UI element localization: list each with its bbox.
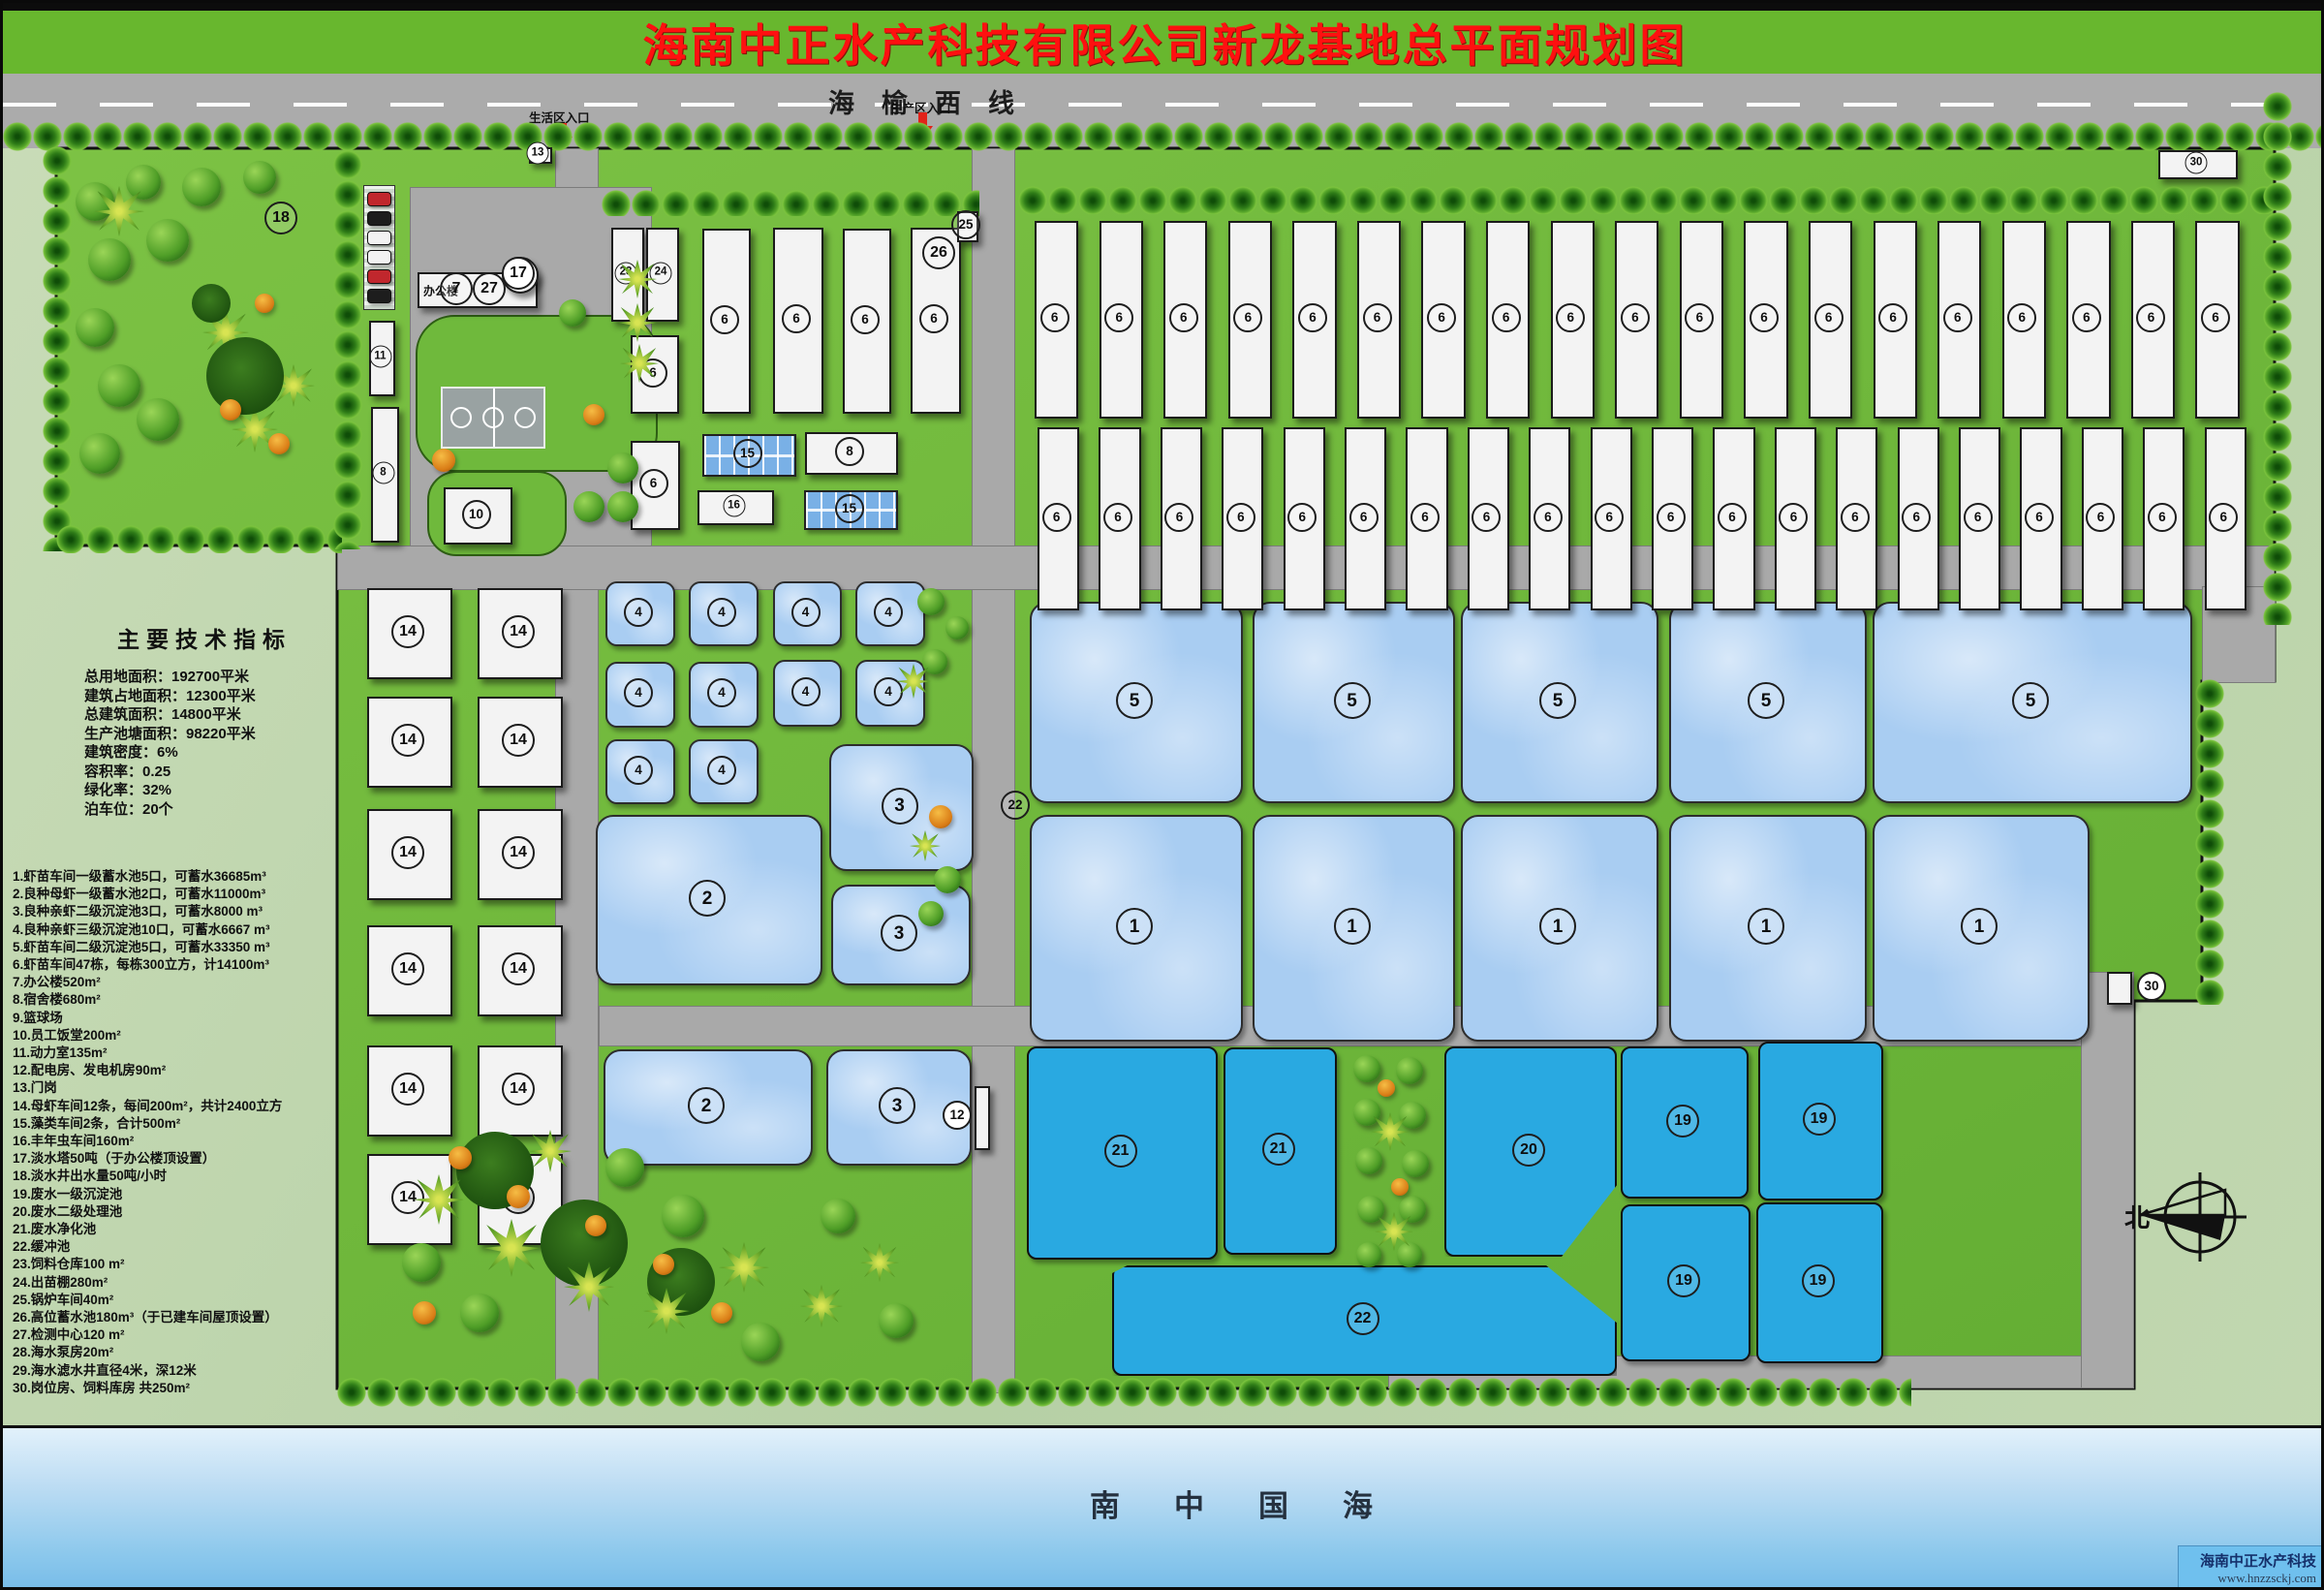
tree-row	[42, 146, 78, 551]
autumn-tree-icon	[449, 1146, 472, 1169]
marker-6: 6	[1814, 303, 1844, 332]
parked-car-icon	[367, 250, 391, 265]
indicators-title: 主要技术指标	[117, 621, 292, 654]
legend-item: 2.良种母虾一级蓄水池2口，可蓄水11000m³	[13, 886, 282, 903]
indicator-line: 总用地面积：192700平米	[84, 668, 256, 687]
legend-item: 20.废水二级处理池	[13, 1203, 282, 1221]
basketball-court	[441, 387, 545, 449]
autumn-tree-icon	[929, 805, 952, 828]
marker-6: 6	[782, 304, 811, 333]
marker-18: 18	[264, 202, 297, 234]
marker-30: 30	[2137, 972, 2166, 1001]
marker-14: 14	[502, 615, 535, 648]
company-logo: 海南中正水产科技 www.hnzzsckj.com	[2178, 1545, 2323, 1590]
marker-6: 6	[1621, 303, 1650, 332]
marker-2: 2	[689, 880, 726, 917]
tree-icon	[607, 452, 638, 483]
marker-6: 6	[919, 304, 948, 333]
tree-icon	[243, 161, 276, 194]
tree-row	[332, 150, 363, 549]
marker-8: 8	[372, 462, 394, 484]
autumn-tree-icon	[711, 1302, 732, 1324]
tree-icon	[1402, 1150, 1429, 1177]
indicator-line: 建筑占地面积：12300平米	[84, 687, 256, 706]
marker-6: 6	[1943, 303, 1972, 332]
tree-row	[2194, 679, 2227, 1005]
marker-16: 16	[723, 495, 745, 517]
legend-item: 25.锅炉车间40m²	[13, 1292, 282, 1309]
court-left-circle	[450, 407, 472, 428]
marker-6: 6	[1298, 303, 1327, 332]
legend-item: 6.虾苗车间47栋，每栋300立方，计14100m³	[13, 956, 282, 974]
marker-15: 15	[835, 494, 864, 523]
marker-14: 14	[502, 724, 535, 757]
palm-tree-icon	[719, 1242, 769, 1293]
marker-4: 4	[707, 598, 736, 627]
marker-22: 22	[1001, 791, 1030, 820]
map-layer: 4444444444233235555511111212120191919192…	[3, 3, 2324, 1590]
marker-5: 5	[2012, 682, 2049, 719]
marker-6: 6	[851, 305, 880, 334]
marker-6: 6	[1595, 503, 1624, 532]
tree-row	[2262, 92, 2303, 625]
legend-item: 26.高位蓄水池180m³（于已建车间屋顶设置）	[13, 1309, 282, 1326]
indicators-list: 总用地面积：192700平米建筑占地面积：12300平米总建筑面积：14800平…	[84, 668, 256, 819]
tree-icon	[662, 1195, 704, 1237]
tree-icon	[607, 491, 638, 522]
tree-cluster-icon	[192, 284, 231, 323]
autumn-tree-icon	[585, 1215, 606, 1236]
legend-item: 17.淡水塔50吨（于办公楼顶设置）	[13, 1150, 282, 1168]
tree-icon	[146, 219, 189, 262]
legend-item: 15.藻类车间2条，合计500m²	[13, 1115, 282, 1133]
tree-icon	[79, 433, 120, 474]
marker-6: 6	[2148, 503, 2177, 532]
tree-icon	[1355, 1147, 1382, 1174]
indicator-line: 建筑密度：6%	[84, 743, 256, 763]
marker-14: 14	[391, 1073, 424, 1106]
marker-6: 6	[2086, 503, 2115, 532]
tree-row	[602, 189, 979, 216]
marker-4: 4	[624, 756, 653, 785]
indicator-line: 总建筑面积：14800平米	[84, 705, 256, 725]
tree-icon	[182, 168, 221, 206]
tree-icon	[1356, 1242, 1381, 1267]
marker-6: 6	[2072, 303, 2101, 332]
marker-14: 14	[502, 836, 535, 869]
legend-item: 22.缓冲池	[13, 1238, 282, 1256]
marker-19: 19	[1666, 1105, 1699, 1138]
legend-item: 16.丰年虫车间160m²	[13, 1133, 282, 1150]
marker-4: 4	[707, 756, 736, 785]
marker-4: 4	[791, 677, 821, 706]
tree-icon	[821, 1199, 855, 1233]
parked-car-icon	[367, 269, 391, 284]
tree-row	[56, 524, 342, 553]
indicator-line: 泊车位：20个	[84, 800, 256, 820]
tree-cluster-icon	[541, 1200, 628, 1287]
marker-5: 5	[1748, 682, 1784, 719]
tree-icon	[460, 1294, 499, 1332]
legend-item: 10.员工饭堂200m²	[13, 1027, 282, 1044]
tree-icon	[934, 866, 961, 893]
marker-27: 27	[473, 272, 506, 305]
marker-3: 3	[882, 788, 918, 825]
marker-19: 19	[1667, 1264, 1700, 1297]
marker-13: 13	[527, 142, 549, 165]
tree-cluster-icon	[206, 337, 284, 415]
marker-3: 3	[879, 1087, 915, 1124]
legend-item: 14.母虾车间12条，每间200m²，共计2400立方	[13, 1098, 282, 1115]
court-right-circle	[514, 407, 536, 428]
palm-tree-icon	[800, 1285, 843, 1327]
marker-6: 6	[1841, 503, 1870, 532]
marker-19: 19	[1803, 1103, 1836, 1136]
tree-icon	[1399, 1196, 1426, 1223]
marker-6: 6	[1169, 303, 1198, 332]
legend-item: 24.出苗棚280m²	[13, 1274, 282, 1292]
legend-item: 8.宿舍楼680m²	[13, 991, 282, 1009]
marker-6: 6	[1040, 303, 1069, 332]
tree-icon	[917, 588, 945, 615]
legend-item: 21.废水净化池	[13, 1221, 282, 1238]
marker-5: 5	[1539, 682, 1576, 719]
marker-12: 12	[943, 1101, 972, 1130]
marker-7: 7	[440, 272, 473, 305]
marker-1: 1	[1961, 908, 1998, 945]
marker-6: 6	[639, 469, 668, 498]
legend-item: 18.淡水井出水量50吨/小时	[13, 1168, 282, 1185]
marker-30: 30	[2185, 152, 2208, 174]
marker-6: 6	[1878, 303, 1907, 332]
marker-22: 22	[1347, 1302, 1379, 1335]
parked-car-icon	[367, 231, 391, 245]
marker-6: 6	[1556, 303, 1585, 332]
compass-north-label: 北	[2124, 1203, 2150, 1232]
building	[2107, 972, 2132, 1005]
marker-4: 4	[624, 598, 653, 627]
marker-14: 14	[391, 1181, 424, 1214]
marker-14: 14	[502, 1073, 535, 1106]
tree-row	[1018, 185, 2276, 214]
site-plan: 海南中正水产科技有限公司新龙基地总平面规划图 海榆西线 生活区入口 生产区入口 …	[0, 0, 2324, 1590]
marker-6: 6	[1685, 303, 1714, 332]
marker-14: 14	[391, 836, 424, 869]
logo-url: www.hnzzsckj.com	[2217, 1571, 2316, 1586]
tree-icon	[879, 1303, 914, 1338]
building	[975, 1086, 990, 1150]
marker-6: 6	[1718, 503, 1747, 532]
legend-item: 5.虾苗车间二级沉淀池5口，可蓄水33350 m³	[13, 939, 282, 956]
marker-15: 15	[733, 439, 762, 468]
marker-8: 8	[835, 437, 864, 466]
marker-1: 1	[1116, 908, 1153, 945]
tree-icon	[1396, 1057, 1423, 1084]
marker-6: 6	[2209, 503, 2238, 532]
tree-icon	[1399, 1102, 1426, 1129]
parked-car-icon	[367, 289, 391, 303]
legend-item: 19.废水一级沉淀池	[13, 1186, 282, 1203]
marker-6: 6	[2007, 303, 2036, 332]
marker-6: 6	[1287, 503, 1317, 532]
marker-6: 6	[1657, 503, 1686, 532]
road-segment	[972, 148, 1015, 1393]
legend-item: 30.岗位房、饲料库房 共250m²	[13, 1380, 282, 1397]
marker-1: 1	[1539, 908, 1576, 945]
logo-company: 海南中正水产科技	[2200, 1550, 2316, 1571]
marker-14: 14	[502, 952, 535, 985]
tree-icon	[88, 238, 131, 281]
autumn-tree-icon	[432, 449, 455, 472]
legend-item: 13.门岗	[13, 1079, 282, 1097]
indicator-line: 绿化率：32%	[84, 781, 256, 800]
marker-14: 14	[391, 952, 424, 985]
parking-lot	[363, 185, 395, 310]
marker-6: 6	[2136, 303, 2165, 332]
tree-icon	[918, 901, 944, 926]
marker-6: 6	[1964, 503, 1993, 532]
marker-6: 6	[710, 305, 739, 334]
tree-row	[3, 121, 2324, 153]
marker-4: 4	[874, 598, 903, 627]
legend-item: 29.海水滤水井直径4米，深12米	[13, 1362, 282, 1380]
sea-label: 南中国海	[1090, 1481, 1427, 1525]
legend-item: 7.办公楼520m²	[13, 974, 282, 991]
legend-item: 23.饲料仓库100 m²	[13, 1256, 282, 1273]
legend-item: 9.篮球场	[13, 1010, 282, 1027]
legend-item: 3.良种亲虾二级沉淀池3口，可蓄水8000 m³	[13, 903, 282, 920]
tree-icon	[605, 1148, 644, 1187]
marker-6: 6	[1427, 303, 1456, 332]
marker-6: 6	[1042, 503, 1071, 532]
autumn-tree-icon	[583, 404, 604, 425]
autumn-tree-icon	[1378, 1079, 1395, 1097]
legend-item: 1.虾苗车间一级蓄水池5口，可蓄水36685m³	[13, 868, 282, 886]
marker-6: 6	[2025, 503, 2054, 532]
tree-icon	[126, 165, 161, 200]
marker-6: 6	[1103, 503, 1132, 532]
marker-14: 14	[391, 724, 424, 757]
tree-icon	[945, 616, 969, 639]
marker-1: 1	[1748, 908, 1784, 945]
legend-list: 1.虾苗车间一级蓄水池5口，可蓄水36685m³2.良种母虾一级蓄水池2口，可蓄…	[13, 868, 282, 1397]
marker-5: 5	[1334, 682, 1371, 719]
marker-6: 6	[2201, 303, 2230, 332]
marker-6: 6	[1750, 303, 1779, 332]
marker-1: 1	[1334, 908, 1371, 945]
palm-tree-icon	[860, 1243, 899, 1282]
marker-5: 5	[1116, 682, 1153, 719]
marker-6: 6	[1902, 503, 1931, 532]
tree-icon	[573, 491, 604, 522]
marker-17: 17	[502, 257, 535, 290]
marker-6: 6	[1104, 303, 1133, 332]
tree-icon	[1353, 1099, 1380, 1126]
marker-21: 21	[1104, 1135, 1137, 1168]
marker-4: 4	[624, 678, 653, 707]
marker-20: 20	[1512, 1134, 1545, 1167]
tree-icon	[741, 1323, 780, 1361]
marker-26: 26	[922, 236, 955, 269]
parked-car-icon	[367, 211, 391, 226]
indicator-line: 容积率：0.25	[84, 763, 256, 782]
autumn-tree-icon	[268, 433, 290, 454]
marker-4: 4	[707, 678, 736, 707]
autumn-tree-icon	[255, 294, 274, 313]
autumn-tree-icon	[413, 1301, 436, 1325]
autumn-tree-icon	[653, 1254, 674, 1275]
autumn-tree-icon	[1391, 1178, 1409, 1196]
legend-item: 28.海水泵房20m²	[13, 1344, 282, 1361]
marker-19: 19	[1802, 1264, 1835, 1297]
marker-6: 6	[1492, 303, 1521, 332]
marker-6: 6	[1534, 503, 1563, 532]
autumn-tree-icon	[507, 1185, 530, 1208]
marker-6: 6	[1363, 303, 1392, 332]
legend-item: 4.良种亲虾三级沉淀池10口，可蓄水6667 m³	[13, 921, 282, 939]
marker-6: 6	[1164, 503, 1193, 532]
indicator-line: 生产池塘面积：98220平米	[84, 725, 256, 744]
tree-row	[337, 1377, 1911, 1414]
marker-2: 2	[688, 1087, 725, 1124]
marker-6: 6	[1472, 503, 1501, 532]
legend-item: 12.配电房、发电机房90m²	[13, 1062, 282, 1079]
marker-11: 11	[369, 346, 391, 368]
tree-icon	[402, 1243, 441, 1282]
marker-21: 21	[1262, 1133, 1295, 1166]
court-center-circle	[482, 407, 504, 428]
compass-icon: 北	[2124, 1151, 2250, 1287]
marker-6: 6	[1349, 503, 1379, 532]
tree-icon	[1397, 1242, 1422, 1267]
tree-icon	[559, 299, 586, 327]
legend-item: 27.检测中心120 m²	[13, 1326, 282, 1344]
autumn-tree-icon	[220, 399, 241, 421]
marker-10: 10	[462, 500, 491, 529]
marker-14: 14	[391, 615, 424, 648]
tree-icon	[76, 308, 114, 347]
marker-6: 6	[1410, 503, 1440, 532]
marker-6: 6	[1233, 303, 1262, 332]
tree-icon	[98, 364, 140, 407]
legend-item: 11.动力室135m²	[13, 1044, 282, 1062]
tree-icon	[1353, 1055, 1380, 1082]
marker-25: 25	[951, 210, 980, 239]
marker-3: 3	[881, 915, 917, 951]
marker-4: 4	[791, 598, 821, 627]
marker-6: 6	[1779, 503, 1808, 532]
parked-car-icon	[367, 192, 391, 206]
marker-6: 6	[1226, 503, 1255, 532]
tree-icon	[137, 398, 179, 441]
